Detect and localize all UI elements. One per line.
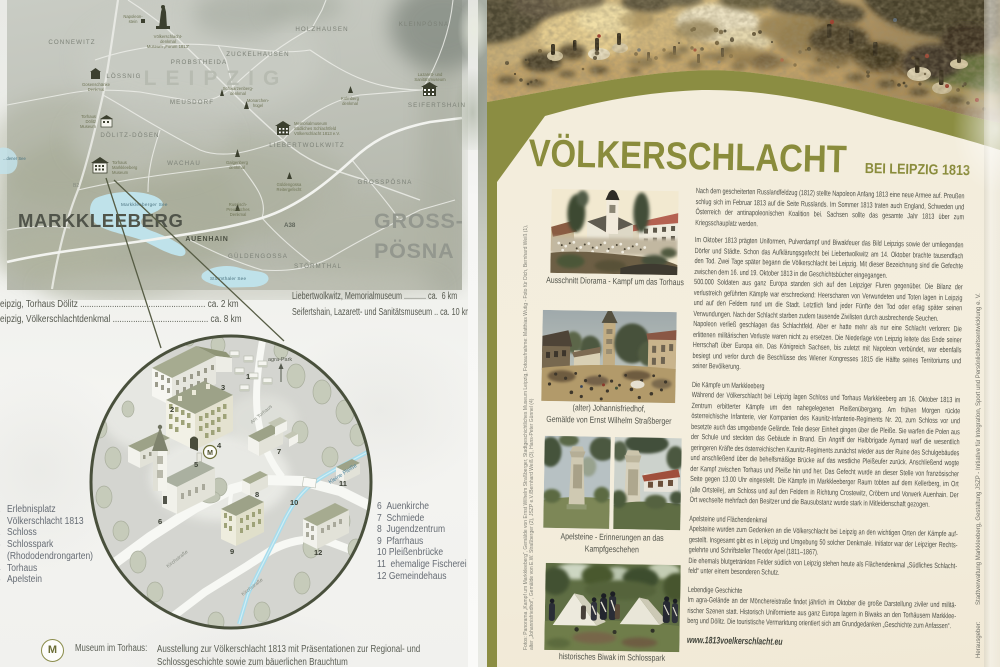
svg-text:5: 5: [194, 460, 198, 469]
svg-text:7: 7: [277, 447, 281, 456]
svg-text:8: 8: [255, 490, 259, 499]
svg-text:9: 9: [230, 547, 234, 556]
svg-text:10: 10: [290, 498, 298, 507]
svg-text:agra-Park: agra-Park: [268, 357, 292, 363]
svg-text:6: 6: [158, 517, 162, 526]
svg-text:1: 1: [246, 372, 250, 381]
svg-text:3: 3: [221, 383, 225, 392]
svg-text:M: M: [207, 450, 213, 457]
svg-text:11: 11: [339, 479, 347, 488]
svg-text:2: 2: [170, 405, 174, 414]
svg-text:12: 12: [314, 548, 322, 557]
